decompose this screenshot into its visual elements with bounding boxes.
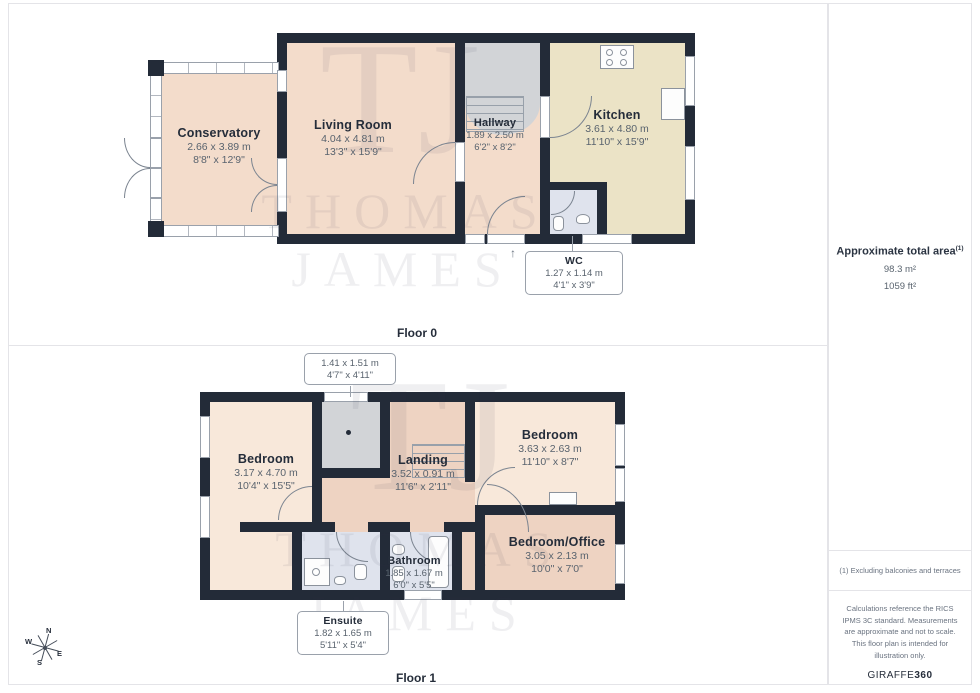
hob-ring-icon <box>620 49 627 56</box>
radiator <box>549 492 577 505</box>
kitchen-bottom-window <box>582 234 632 244</box>
conservatory-window-left-1 <box>150 74 162 138</box>
hob <box>600 45 634 69</box>
sidebar-note-box: (1) Excluding balconies and terraces <box>828 550 972 591</box>
compass-north-label: N <box>46 626 51 635</box>
conservatory-window-top <box>160 62 279 74</box>
bedroom1-window-1 <box>200 416 210 458</box>
conservatory-post <box>148 60 164 76</box>
conservatory-door-leaf-2 <box>150 168 162 198</box>
kitchen-door-opening <box>540 96 550 138</box>
floor0-label: Floor 0 <box>397 326 437 340</box>
stairs-callout-leader <box>350 386 351 397</box>
brand-suffix: 360 <box>914 670 932 681</box>
brand-name: GIRAFFE <box>867 670 914 681</box>
wall-wc-right <box>597 182 607 234</box>
room-label-office: Bedroom/Office 3.05 x 2.13 m 10'0" x 7'0… <box>509 535 606 575</box>
bedroom1-window-2 <box>200 496 210 538</box>
ensuite-sink <box>334 576 346 585</box>
kitchen-appliance <box>661 88 685 120</box>
compass-center-dot <box>43 646 47 650</box>
excluding-note: (1) Excluding balconies and terraces <box>829 566 971 575</box>
area-title: Approximate total area(1) <box>829 245 971 258</box>
room-label-hallway: Hallway 1.89 x 2.50 m 6'2" x 8'2" <box>466 117 524 153</box>
sidebar-area-box: Approximate total area(1) 98.3 m² 1059 f… <box>828 3 972 551</box>
room-label-bedroom1: Bedroom 3.17 x 4.70 m 10'4" x 15'5" <box>234 452 298 492</box>
area-summary: Approximate total area(1) 98.3 m² 1059 f… <box>829 245 971 292</box>
area-title-text: Approximate total area <box>836 246 955 258</box>
floorplan-page: TJ THOMAS JAMES ↑ Conservatory <box>0 0 980 693</box>
room-label-living: Living Room 4.04 x 4.81 m 13'3" x 15'9" <box>314 118 392 158</box>
wc-callout: WC 1.27 x 1.14 m 4'1" x 3'9" <box>525 251 623 295</box>
office-window <box>615 544 625 584</box>
room-label-kitchen: Kitchen 3.61 x 4.80 m 11'10" x 15'9" <box>585 108 649 148</box>
kitchen-window-2 <box>685 146 695 200</box>
stairs-callout: 1.41 x 1.51 m 4'7" x 4'11" <box>304 353 396 385</box>
giraffe360-logo: GIRAFFE360 <box>829 670 971 681</box>
wc-callout-leader <box>572 236 573 252</box>
room-label-landing: Landing 3.52 x 0.91 m 11'6" x 2'11" <box>391 453 455 493</box>
room-label-bathroom: Bathroom 1.85 x 1.67 m 6'0" x 5'5" <box>385 555 443 591</box>
area-ft2: 1059 ft² <box>829 281 971 292</box>
conservatory-door-leaf-1 <box>150 138 162 168</box>
bedroom2-window-1 <box>615 424 625 466</box>
living-conservatory-window <box>277 70 287 92</box>
hob-ring-icon <box>606 59 613 66</box>
compass-west-label: W <box>25 637 32 646</box>
conservatory-post <box>148 221 164 237</box>
ensuite-callout: Ensuite 1.82 x 1.65 m 5'11" x 5'4" <box>297 611 389 655</box>
wc-toilet <box>553 216 564 231</box>
compass-south-label: S <box>37 658 42 667</box>
disclaimer-text: Calculations reference the RICS IPMS 3C … <box>840 603 960 661</box>
kitchen-window-1 <box>685 56 695 106</box>
sidebar-disclaimer-box: Calculations reference the RICS IPMS 3C … <box>828 590 972 685</box>
area-title-superscript: (1) <box>956 245 964 252</box>
compass-east-label: E <box>57 649 62 658</box>
bedroom2-window-2 <box>615 468 625 502</box>
wall-bedroom2-bottom <box>515 505 615 515</box>
watermark-james: JAMES <box>291 244 514 294</box>
disclaimer-block: Calculations reference the RICS IPMS 3C … <box>829 603 971 681</box>
floor1-label: Floor 1 <box>396 671 436 685</box>
area-m2: 98.3 m² <box>829 264 971 275</box>
watermark-thomas: THOMAS <box>261 186 550 236</box>
hob-ring-icon <box>606 49 613 56</box>
hob-ring-icon <box>620 59 627 66</box>
room-label-conservatory: Conservatory 2.66 x 3.89 m 8'8" x 12'9" <box>178 126 261 166</box>
entrance-arrow: ↑ <box>510 246 516 260</box>
wc-sink <box>576 214 590 224</box>
room-label-bedroom2: Bedroom 3.63 x 2.63 m 11'10" x 8'7" <box>518 428 582 468</box>
